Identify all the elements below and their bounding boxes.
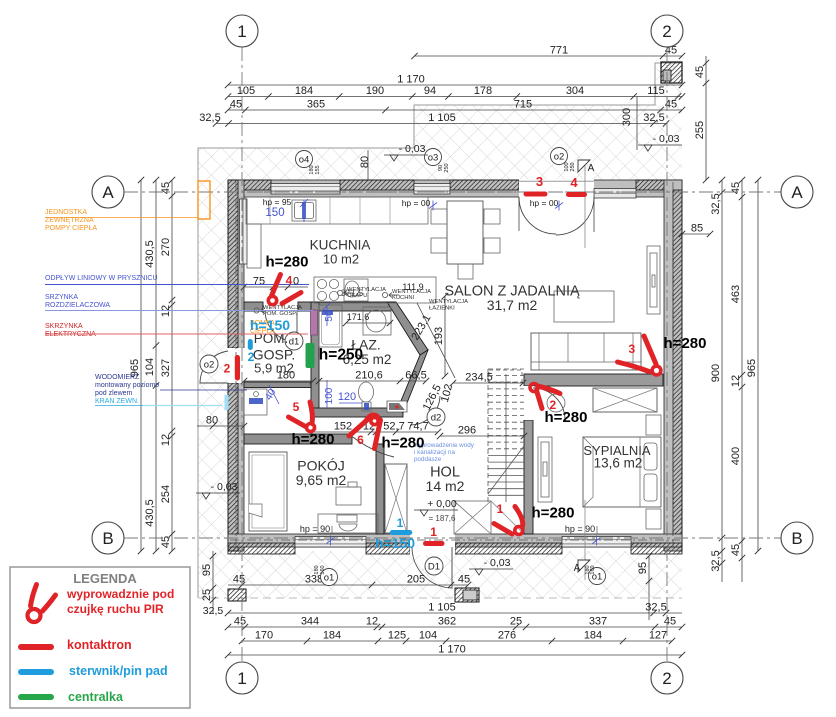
svg-text:h=150: h=150 — [250, 317, 290, 333]
svg-text:pod zlewem: pod zlewem — [95, 390, 133, 397]
svg-text:ZEWNĘTRZNA: ZEWNĘTRZNA — [45, 217, 94, 224]
svg-text:hp = 90: hp = 90 — [565, 524, 595, 534]
svg-text:1: 1 — [237, 22, 246, 41]
svg-text:104: 104 — [419, 630, 437, 642]
svg-text:14 m2: 14 m2 — [426, 478, 465, 494]
svg-text:o4: o4 — [299, 155, 310, 166]
svg-text:poddasze: poddasze — [414, 456, 442, 463]
svg-text:32,5: 32,5 — [710, 550, 722, 571]
svg-text:SRZYNKA: SRZYNKA — [45, 294, 78, 301]
svg-text:4: 4 — [286, 274, 293, 288]
svg-text:WODOMIERZ: WODOMIERZ — [95, 374, 140, 381]
svg-text:12: 12 — [160, 305, 172, 317]
svg-text:1 105: 1 105 — [428, 112, 456, 124]
svg-text:184: 184 — [323, 630, 341, 642]
svg-text:2: 2 — [224, 362, 231, 376]
svg-text:ELEKTRYCZNA: ELEKTRYCZNA — [45, 331, 96, 338]
svg-text:2: 2 — [248, 350, 255, 364]
svg-text:o2: o2 — [204, 360, 215, 371]
svg-text:715: 715 — [514, 99, 532, 111]
svg-text:304: 304 — [566, 85, 584, 97]
svg-text:WENTYLACJA: WENTYLACJA — [429, 299, 468, 305]
svg-text:45: 45 — [664, 616, 676, 628]
svg-text:95: 95 — [201, 564, 213, 576]
svg-text:= 187,6: = 187,6 — [429, 514, 456, 523]
svg-text:1: 1 — [397, 516, 404, 530]
svg-text:2: 2 — [662, 669, 671, 688]
svg-text:5: 5 — [293, 400, 300, 414]
svg-text:h=280: h=280 — [382, 435, 425, 452]
svg-text:3: 3 — [628, 342, 635, 356]
svg-text:KUCHNIA: KUCHNIA — [310, 238, 371, 253]
svg-text:193: 193 — [433, 327, 445, 345]
svg-text:POMPY CIEPŁA: POMPY CIEPŁA — [45, 225, 97, 232]
svg-text:52,7: 52,7 — [383, 421, 404, 433]
svg-text:104: 104 — [144, 358, 156, 376]
svg-text:270: 270 — [160, 238, 172, 256]
svg-text:344: 344 — [301, 616, 319, 628]
svg-text:32,5: 32,5 — [199, 112, 220, 124]
svg-text:365: 365 — [307, 99, 325, 111]
svg-text:hp = 95: hp = 95 — [263, 197, 292, 207]
svg-text:32,5: 32,5 — [203, 605, 224, 617]
svg-text:300: 300 — [621, 108, 633, 126]
svg-text:31,7 m2: 31,7 m2 — [487, 297, 538, 313]
svg-text:- 0,03: - 0,03 — [653, 133, 680, 145]
svg-text:400: 400 — [730, 447, 742, 465]
svg-text:B: B — [102, 529, 113, 548]
svg-text:czujkę ruchu PIR: czujkę ruchu PIR — [67, 602, 164, 616]
svg-text:h=280: h=280 — [266, 254, 309, 271]
svg-text:234,5: 234,5 — [465, 372, 493, 384]
svg-text:45: 45 — [730, 544, 742, 556]
svg-text:B: B — [791, 529, 802, 548]
svg-text:2: 2 — [549, 398, 556, 412]
svg-text:- 0,03: - 0,03 — [211, 481, 238, 493]
svg-text:85: 85 — [691, 223, 703, 235]
svg-text:ODPŁYW LINIOWY W PRYSZNICU: ODPŁYW LINIOWY W PRYSZNICU — [45, 275, 158, 282]
svg-text:o3: o3 — [428, 153, 439, 164]
svg-text:montowany poziomo: montowany poziomo — [95, 382, 159, 389]
svg-text:4: 4 — [570, 175, 578, 190]
svg-text:371,5: 371,5 — [341, 288, 364, 298]
svg-text:94: 94 — [424, 85, 436, 97]
svg-text:50: 50 — [324, 310, 335, 322]
svg-text:hp = 90: hp = 90 — [300, 524, 330, 534]
svg-text:45: 45 — [458, 574, 470, 586]
svg-text:centralka: centralka — [68, 690, 124, 704]
svg-text:155: 155 — [315, 165, 321, 174]
svg-text:255: 255 — [694, 121, 706, 139]
svg-text:362: 362 — [438, 616, 456, 628]
svg-text:184: 184 — [584, 630, 602, 642]
svg-text:kontaktron: kontaktron — [67, 638, 132, 652]
svg-text:170: 170 — [255, 630, 273, 642]
svg-text:171,6: 171,6 — [347, 312, 370, 322]
svg-text:115: 115 — [647, 85, 665, 97]
svg-text:32,5: 32,5 — [645, 602, 666, 614]
svg-text:125: 125 — [388, 630, 406, 642]
svg-text:A: A — [102, 183, 114, 202]
svg-text:ŁAZIENKI: ŁAZIENKI — [429, 306, 455, 312]
svg-text:152: 152 — [334, 421, 352, 433]
svg-text:o2: o2 — [554, 152, 565, 163]
svg-text:25: 25 — [510, 616, 522, 628]
svg-text:2: 2 — [662, 22, 671, 41]
svg-text:276: 276 — [498, 630, 516, 642]
svg-text:h=280: h=280 — [532, 505, 575, 522]
svg-text:KRAN ZEWN.: KRAN ZEWN. — [95, 398, 139, 405]
svg-text:430,5: 430,5 — [144, 240, 156, 268]
svg-text:250: 250 — [570, 162, 576, 171]
svg-text:10 m2: 10 m2 — [323, 252, 359, 267]
svg-text:sterwnik/pin pad: sterwnik/pin pad — [69, 664, 168, 678]
svg-text:254: 254 — [160, 485, 172, 503]
svg-text:160: 160 — [320, 565, 326, 574]
svg-text:5,9 m2: 5,9 m2 — [254, 361, 294, 376]
svg-text:45: 45 — [234, 616, 246, 628]
svg-text:900: 900 — [710, 364, 722, 382]
svg-text:h=280: h=280 — [664, 335, 707, 352]
svg-text:127: 127 — [649, 630, 667, 642]
svg-text:150: 150 — [265, 207, 284, 219]
svg-text:h=280: h=280 — [292, 431, 335, 448]
svg-text:95: 95 — [637, 562, 649, 574]
svg-text:45: 45 — [230, 99, 242, 111]
svg-text:1: 1 — [237, 669, 246, 688]
svg-text:296: 296 — [458, 425, 476, 437]
svg-text:9,65 m2: 9,65 m2 — [296, 472, 347, 488]
svg-text:ROZDZIELACZOWA: ROZDZIELACZOWA — [45, 302, 110, 309]
svg-text:184: 184 — [295, 85, 313, 97]
svg-text:105: 105 — [237, 85, 255, 97]
svg-text:327: 327 — [160, 359, 172, 377]
svg-text:250: 250 — [444, 163, 450, 172]
svg-text:6: 6 — [357, 433, 364, 447]
svg-text:- 0,03: - 0,03 — [484, 557, 511, 569]
svg-text:337: 337 — [589, 616, 607, 628]
svg-text:D1: D1 — [428, 562, 440, 573]
svg-text:12: 12 — [366, 616, 378, 628]
svg-text:13,6 m2: 13,6 m2 — [594, 456, 643, 471]
svg-text:d2: d2 — [431, 413, 442, 424]
svg-text:JEDNOSTKA: JEDNOSTKA — [45, 209, 87, 216]
svg-text:0: 0 — [293, 276, 299, 288]
svg-text:12: 12 — [730, 375, 742, 387]
svg-text:1: 1 — [430, 525, 437, 539]
svg-text:100: 100 — [324, 387, 335, 404]
svg-text:205: 205 — [407, 574, 425, 586]
svg-text:KUCHNI: KUCHNI — [392, 295, 415, 301]
svg-text:hp = 00: hp = 00 — [402, 198, 431, 208]
svg-text:771: 771 — [550, 45, 568, 57]
svg-text:1 105: 1 105 — [428, 602, 456, 614]
svg-text:45: 45 — [694, 66, 706, 78]
svg-text:25: 25 — [201, 589, 213, 601]
svg-text:1 170: 1 170 — [397, 74, 425, 86]
svg-text:160: 160 — [590, 565, 596, 574]
svg-text:12: 12 — [160, 434, 172, 446]
svg-text:190: 190 — [366, 85, 384, 97]
svg-text:- 0,03: - 0,03 — [399, 143, 426, 155]
svg-text:32,5: 32,5 — [643, 112, 664, 124]
svg-text:wyprowadznie pod: wyprowadznie pod — [66, 587, 174, 601]
svg-text:1: 1 — [497, 502, 504, 516]
svg-text:SKRZYNKA: SKRZYNKA — [45, 323, 83, 330]
svg-text:3: 3 — [536, 174, 543, 189]
svg-text:32,5: 32,5 — [710, 193, 722, 214]
svg-text:1 170: 1 170 — [438, 644, 466, 656]
svg-text:80: 80 — [206, 415, 218, 427]
svg-text:430,5: 430,5 — [144, 499, 156, 527]
svg-text:hp = 00: hp = 00 — [530, 198, 559, 208]
svg-text:80: 80 — [359, 156, 371, 168]
svg-text:LEGENDA: LEGENDA — [73, 571, 137, 586]
svg-text:463: 463 — [730, 285, 742, 303]
svg-text:A: A — [791, 183, 803, 202]
svg-text:A: A — [588, 163, 595, 174]
svg-text:75: 75 — [253, 276, 265, 288]
svg-text:A: A — [574, 563, 581, 574]
svg-text:74,7: 74,7 — [407, 421, 428, 433]
svg-text:+ 0,00: + 0,00 — [427, 498, 457, 510]
svg-text:965: 965 — [746, 359, 758, 377]
svg-text:h=250: h=250 — [319, 347, 363, 364]
svg-text:66,5: 66,5 — [405, 370, 426, 382]
svg-text:45: 45 — [233, 574, 245, 586]
svg-text:210,6: 210,6 — [355, 370, 383, 382]
svg-text:120: 120 — [338, 391, 356, 403]
svg-text:h=150: h=150 — [375, 535, 415, 551]
svg-text:178: 178 — [474, 85, 492, 97]
svg-text:WENTYLACJA: WENTYLACJA — [392, 289, 431, 295]
